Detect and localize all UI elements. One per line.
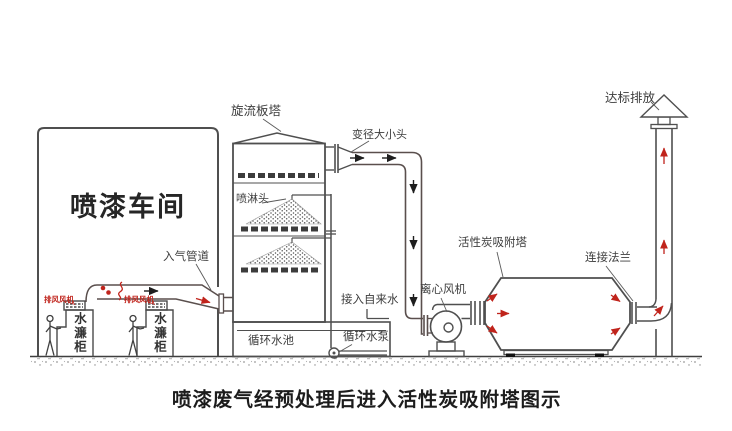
- label-tap-water: 接入自来水: [341, 295, 399, 307]
- scrubber-tower: [233, 133, 331, 322]
- gas-pipe: [352, 153, 433, 337]
- label-spray-head: 喷淋头: [236, 194, 269, 205]
- worker-figure-icon: [46, 316, 61, 356]
- label-paint-workshop: 喷漆车间: [70, 194, 186, 221]
- label-exhaust-fan-2: 排风风机: [124, 296, 154, 304]
- inlet-flange-icon: [471, 301, 484, 325]
- ground-line: [30, 357, 702, 366]
- label-centrifugal-fan: 离心风机: [420, 285, 466, 297]
- centrifugal-fan-icon: [429, 305, 470, 357]
- label-reducer: 变径大小头: [352, 130, 407, 141]
- label-scrubber-tower: 旋流板塔: [231, 105, 281, 118]
- carbon-adsorption-tower: [485, 278, 657, 357]
- process-diagram: 旋流板塔 变径大小头 达标排放 喷漆车间 入气管道 喷淋头 接入自来水 循环水池…: [0, 0, 732, 431]
- label-water-curtain-cabinet-2: 水濂柜: [153, 312, 168, 354]
- tap-water-line: [367, 309, 389, 319]
- label-circulating-pump: 循环水泵: [343, 332, 389, 344]
- reducer-fitting: [325, 144, 352, 173]
- label-inlet-duct: 入气管道: [163, 252, 209, 264]
- label-exhaust-fan-1: 排风风机: [44, 296, 74, 304]
- diagram-caption: 喷漆废气经预处理后进入活性炭吸附塔图示: [172, 391, 562, 411]
- spray-water-pipe: [326, 194, 336, 348]
- flow-arrows-red: [196, 148, 664, 334]
- label-water-curtain-cabinet-1: 水濂柜: [73, 312, 88, 354]
- label-circulating-pool: 循环水池: [248, 336, 294, 348]
- flow-arrows-black: [144, 158, 414, 306]
- exhaust-stack: [641, 95, 687, 357]
- label-compliant-emission: 达标排放: [605, 92, 655, 105]
- label-connecting-flange: 连接法兰: [585, 253, 631, 265]
- workshop-outline: [38, 128, 218, 356]
- label-carbon-tower: 活性炭吸附塔: [458, 238, 527, 250]
- spray-cone-icon: [246, 242, 321, 264]
